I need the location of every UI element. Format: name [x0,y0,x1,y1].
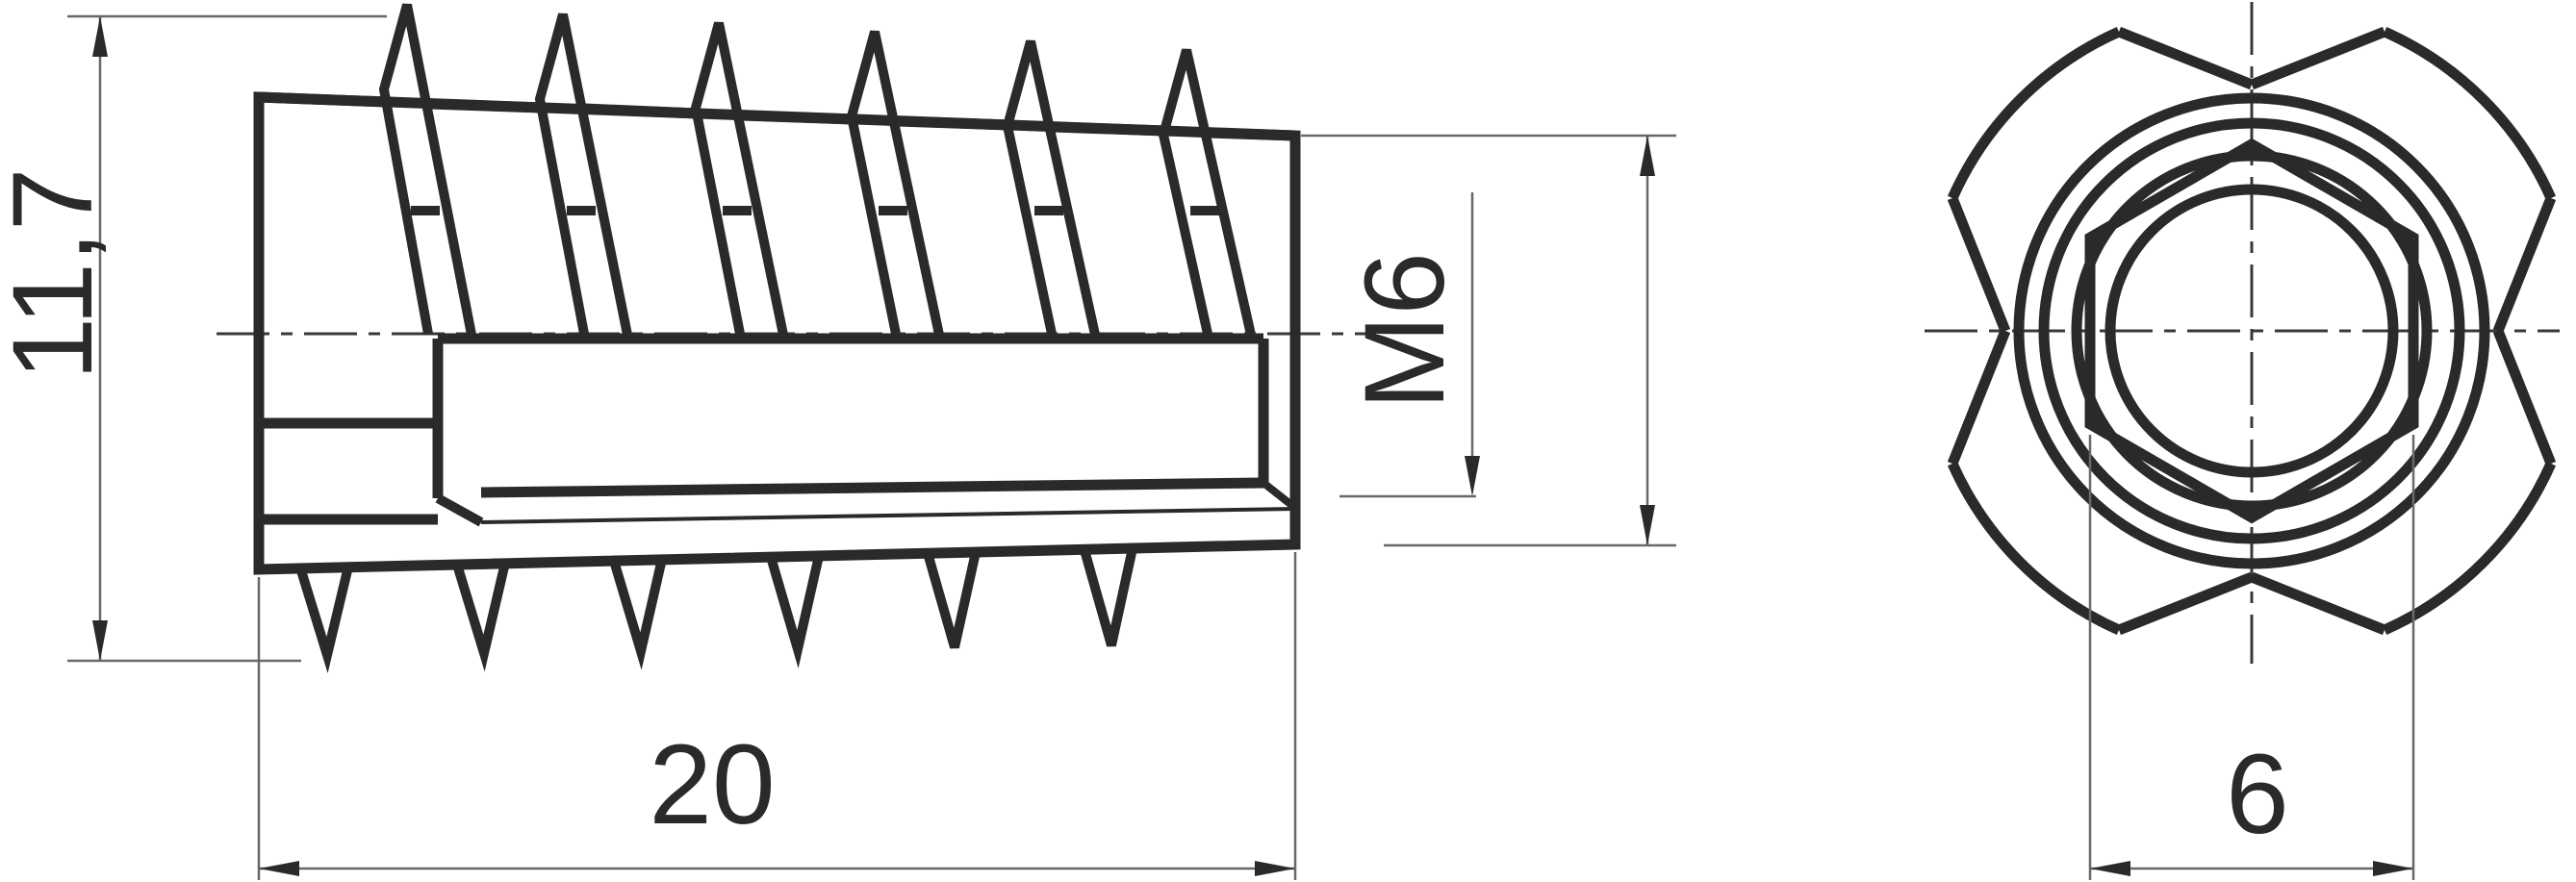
collar-lines [259,423,438,519]
thread-blade [696,23,783,335]
thread-blade [1163,50,1251,335]
dim-text-thread: M6 [1341,252,1468,410]
bore-section [438,339,1295,522]
arrowhead-left [2090,861,2130,876]
side-view: 11,7 20 M6 [0,5,1676,880]
end-view: 6 [1925,2,2560,880]
tooth [457,563,505,653]
technical-drawing-page: 11,7 20 M6 [0,0,2576,882]
dim-text-overall-diameter: 11,7 [0,168,116,381]
tooth [300,567,348,655]
arrowhead-right [2373,861,2413,876]
bore-bottom-edge [481,483,1263,492]
thread-blade [1007,41,1095,335]
dimension-20: 20 [259,552,1295,880]
tooth [928,552,976,647]
tooth [614,559,662,651]
arrowhead-down [1465,456,1480,496]
thread-blade [852,32,939,335]
thread-blade [384,5,472,335]
thread-blade [540,14,627,335]
insert-drawing-canvas: 11,7 20 M6 [0,0,2576,882]
dim-text-length: 20 [649,721,775,848]
arrowhead-up [92,16,108,57]
tooth [1084,548,1133,645]
arrowhead-right [1255,861,1295,876]
bore-under-line [481,509,1295,522]
arrowhead-up [1640,136,1655,176]
arrowhead-left [259,861,299,876]
thread-callout-m6: M6 [1339,192,1480,496]
tooth [771,556,819,649]
arrowhead-down [92,620,108,661]
bore-left-chamfer [438,498,481,522]
dim-text-hex: 6 [2226,731,2289,858]
thread-blades [384,5,1251,335]
arrowhead-down [1640,505,1655,545]
